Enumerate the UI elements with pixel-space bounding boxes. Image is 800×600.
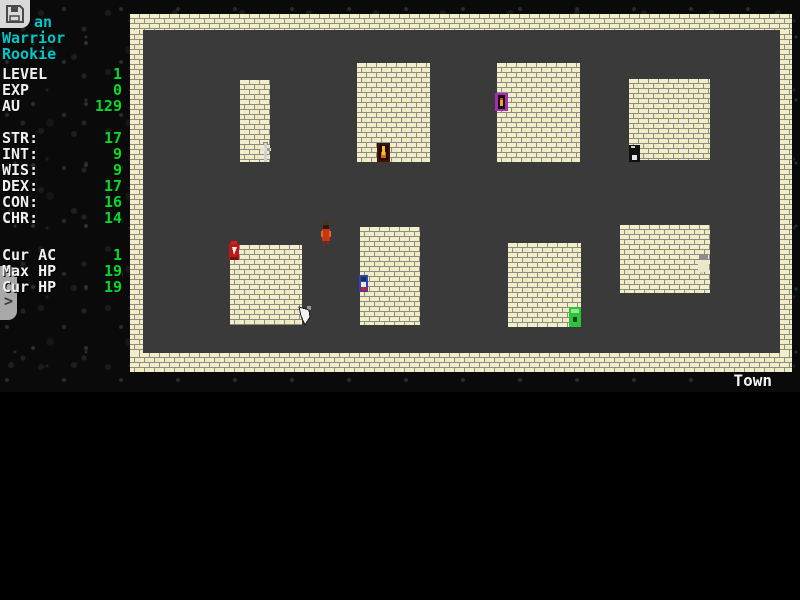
hud-row-cur-hp: Cur HP19 bbox=[2, 279, 122, 295]
building-2 bbox=[357, 63, 430, 162]
blue-villager-npc[interactable] bbox=[358, 274, 369, 293]
character-name: an bbox=[34, 14, 52, 30]
hud-row-str: STR:17 bbox=[2, 130, 122, 146]
character-rank: Rookie bbox=[2, 46, 56, 62]
hud-row-cur-ac: Cur AC1 bbox=[2, 247, 122, 263]
floppy-disk-icon bbox=[5, 4, 25, 24]
hud-row-exp: EXP0 bbox=[2, 82, 122, 98]
purple-door-icon[interactable] bbox=[495, 93, 508, 111]
save-button[interactable] bbox=[0, 0, 30, 28]
building-4 bbox=[629, 79, 710, 160]
game-viewport: Town an Warrior Rookie LEVEL1 EXP0 AU129… bbox=[0, 0, 800, 392]
town-wall-left bbox=[130, 30, 143, 353]
red-wanderer-npc[interactable] bbox=[320, 222, 332, 245]
red-knight-npc[interactable] bbox=[228, 241, 240, 261]
hud-row-dex: DEX:17 bbox=[2, 178, 122, 194]
hud-row-con: CON:16 bbox=[2, 194, 122, 210]
town-wall-bottom bbox=[130, 353, 792, 372]
hud-row-max-hp: Max HP19 bbox=[2, 263, 122, 279]
town-wall-top bbox=[130, 14, 792, 30]
hud-row-int: INT:9 bbox=[2, 146, 122, 162]
chevron-right-icon: > bbox=[4, 294, 13, 309]
hud-row-chr: CHR:14 bbox=[2, 210, 122, 226]
hud-row-au: AU129 bbox=[2, 98, 122, 114]
hud-row-level: LEVEL1 bbox=[2, 66, 122, 82]
hud-row-wis: WIS:9 bbox=[2, 162, 122, 178]
white-dagger-sign-icon[interactable] bbox=[297, 305, 312, 326]
town-wall-right bbox=[780, 30, 792, 353]
white-creature-npc[interactable] bbox=[697, 254, 710, 274]
building-6 bbox=[360, 227, 420, 325]
character-class: Warrior bbox=[2, 30, 65, 46]
sword-sign-icon[interactable] bbox=[259, 142, 271, 163]
dark-door-icon[interactable] bbox=[629, 145, 640, 162]
green-door-icon[interactable] bbox=[569, 307, 581, 327]
location-label: Town bbox=[650, 371, 772, 390]
building-3 bbox=[497, 63, 580, 162]
torch-door-icon[interactable] bbox=[377, 143, 390, 162]
building-5 bbox=[230, 245, 302, 325]
